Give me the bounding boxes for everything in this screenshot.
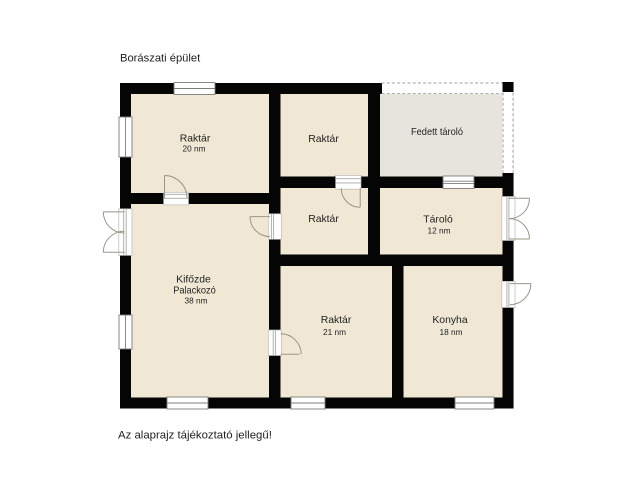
svg-text:18 nm: 18 nm (439, 327, 462, 337)
svg-text:Kifőzde: Kifőzde (176, 275, 211, 286)
svg-text:20 nm: 20 nm (182, 144, 205, 154)
svg-text:Az alaprajz tájékoztató jelleg: Az alaprajz tájékoztató jellegű! (118, 430, 272, 442)
svg-text:Raktár: Raktár (321, 315, 352, 326)
svg-text:Borászati épület: Borászati épület (120, 53, 201, 65)
svg-text:Tároló: Tároló (423, 215, 453, 226)
svg-text:Raktár: Raktár (308, 214, 339, 225)
svg-text:Raktár: Raktár (308, 134, 339, 145)
svg-text:21 nm: 21 nm (323, 327, 346, 337)
svg-text:Konyha: Konyha (432, 315, 467, 326)
svg-text:12 nm: 12 nm (427, 226, 450, 236)
svg-text:Fedett tároló: Fedett tároló (411, 127, 463, 138)
svg-text:38 nm: 38 nm (184, 296, 207, 306)
